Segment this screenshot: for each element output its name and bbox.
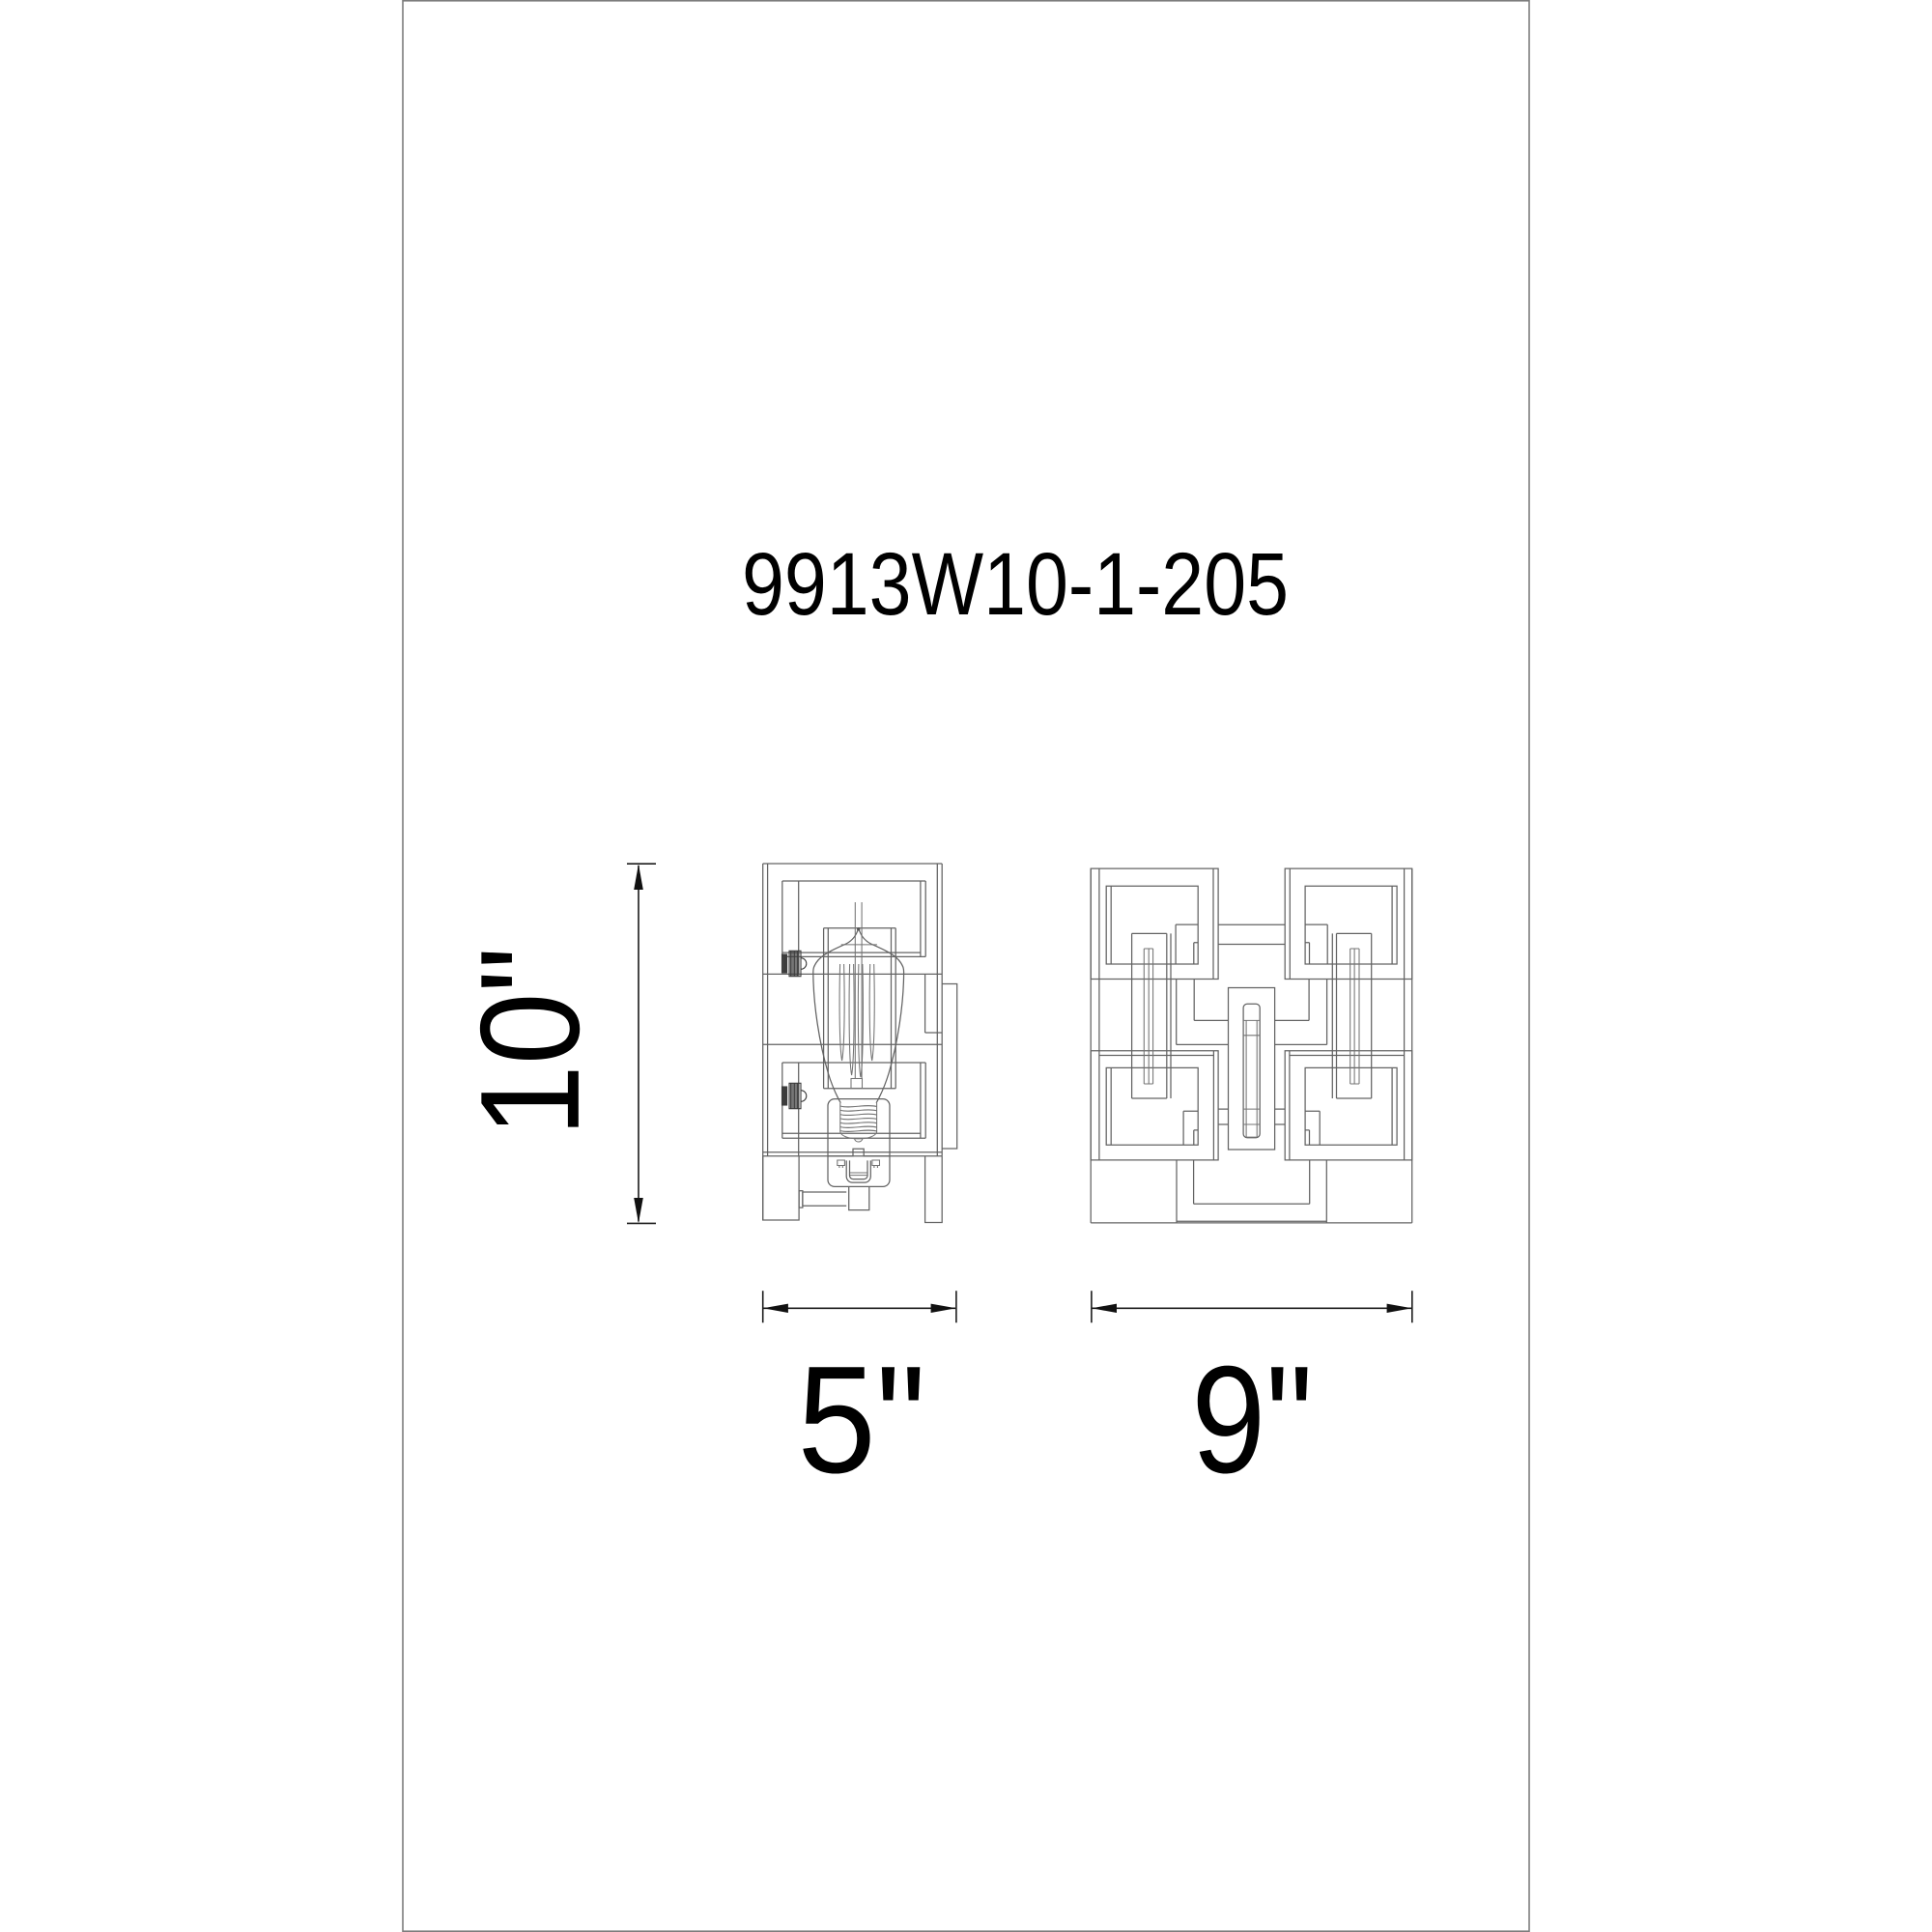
svg-text:10": 10": [451, 947, 609, 1137]
svg-text:9": 9": [1191, 1335, 1313, 1505]
svg-text:5": 5": [798, 1335, 926, 1505]
svg-text:9913W10-1-205: 9913W10-1-205: [742, 535, 1289, 634]
